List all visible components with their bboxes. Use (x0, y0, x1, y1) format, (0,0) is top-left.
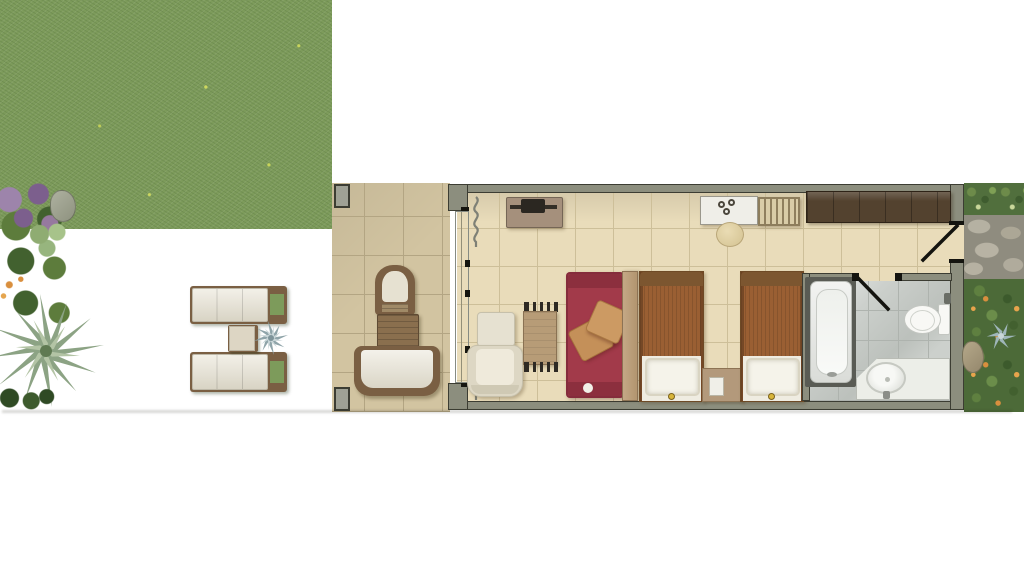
stool (716, 222, 744, 247)
curtain-top (469, 195, 483, 249)
exterior-agave-plant (984, 320, 1018, 352)
patio-chair (375, 265, 415, 315)
toilet-seat-rim (910, 310, 935, 331)
bathtub-faucet (827, 372, 837, 377)
bathroom-wall-top-right (896, 273, 952, 281)
dining-table (523, 311, 557, 365)
ottoman (477, 312, 515, 347)
desk-item-ring-1 (718, 201, 725, 208)
glass-handle-2 (465, 290, 470, 297)
lounger-frame-gap (270, 361, 284, 383)
wall-right-upper (950, 184, 964, 225)
nightstand-phone (709, 377, 724, 396)
bed-foot-board (640, 272, 703, 286)
lounger-frame-gap (270, 294, 284, 315)
glass-frame-tip-top (461, 207, 469, 211)
twin-bed-2 (740, 271, 804, 402)
toilet-bowl (904, 305, 941, 334)
window-wall-stub-bottom (448, 383, 468, 410)
bathtub-basin (816, 289, 848, 375)
light-shrub (22, 216, 72, 262)
patio-chair-cushion (382, 271, 408, 302)
garden-rock (50, 190, 76, 222)
dark-shrubs (0, 384, 56, 412)
terrace-pillar-top (334, 184, 350, 208)
sun-lounger-1 (190, 286, 287, 324)
armchair-back (471, 385, 519, 394)
daybed-top-roll (568, 274, 622, 288)
glass-handle-1 (465, 260, 470, 267)
armchair (467, 345, 523, 397)
daybed-bottom-roll (568, 382, 622, 396)
patio-sofa (354, 346, 440, 396)
towel-ring (944, 293, 951, 304)
patio-sofa-cushion (361, 350, 433, 388)
bed-accent-dot (668, 393, 675, 400)
basin-drain (885, 377, 890, 382)
nightstand (702, 368, 743, 402)
plan-edge-shadow (2, 410, 1012, 413)
luggage-rack (758, 197, 800, 226)
exterior-rock (962, 341, 984, 373)
terrace-pillar-bottom (334, 387, 350, 411)
lounger-cushion (192, 354, 268, 390)
patio-chair-seat (382, 304, 408, 312)
twin-bed-1 (639, 271, 704, 402)
wall-right-lower (950, 259, 964, 410)
entry-door-opening (950, 225, 964, 259)
wall-bottom (448, 401, 968, 410)
stone-entry-path (964, 215, 1024, 279)
agave-plant (252, 320, 290, 356)
daybed-knob (582, 382, 594, 394)
desk (700, 196, 758, 225)
armchair-seat (476, 349, 514, 385)
bathtub (810, 281, 852, 383)
bed-pillow (746, 358, 800, 396)
wood-divider-panel (622, 271, 638, 401)
desk-item-ring-3 (723, 208, 730, 215)
sun-lounger-2 (190, 352, 287, 392)
bed-foot-board (741, 272, 803, 286)
vanity-faucet (883, 391, 890, 399)
lounger-cushion (192, 288, 268, 322)
bed-pillow (645, 358, 700, 396)
vanity-basin (866, 362, 906, 394)
bed-accent-dot (768, 393, 775, 400)
desk-item-ring-2 (728, 199, 735, 206)
tv (521, 199, 545, 213)
wardrobe (806, 191, 951, 223)
dining-chair-bottom (524, 362, 558, 372)
hedge (964, 183, 1024, 215)
floor-plan (0, 0, 1024, 585)
